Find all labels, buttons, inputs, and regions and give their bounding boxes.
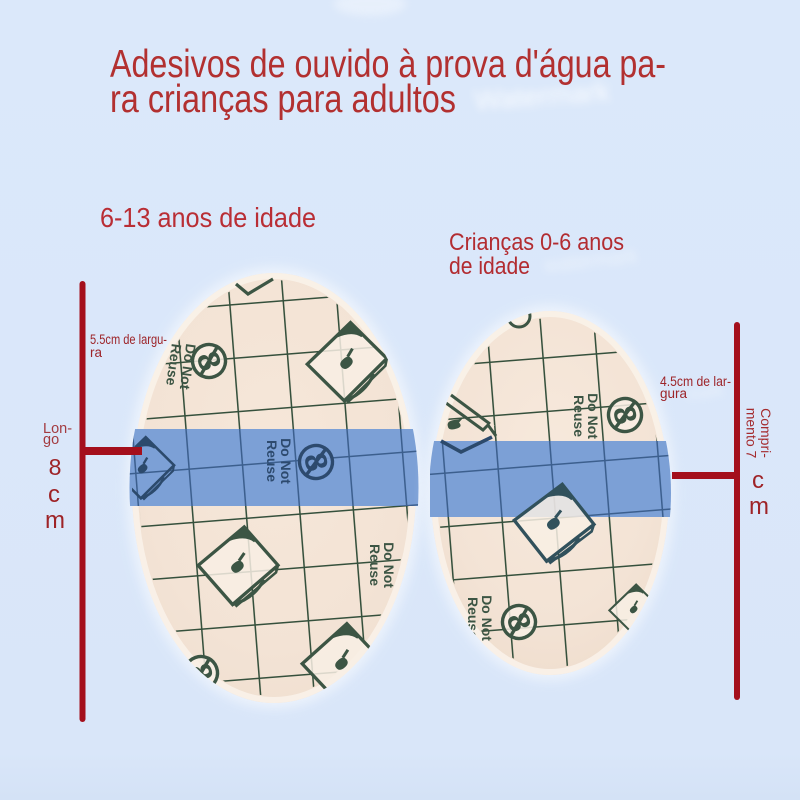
svg-text:8: 8 [49,454,62,480]
svg-text:ra: ra [90,345,102,360]
svg-text:gura: gura [660,386,688,401]
svg-text:m: m [45,507,65,534]
svg-text:de idade: de idade [449,253,530,280]
svg-text:mento 7: mento 7 [744,408,760,459]
svg-text:go: go [43,432,59,448]
svg-text:m: m [749,493,769,520]
svg-text:c: c [48,481,60,508]
svg-text:c: c [752,467,764,494]
svg-text:ra crianças para adultos: ra crianças para adultos [110,78,456,121]
svg-text:6-13 anos de idade: 6-13 anos de idade [100,202,316,233]
svg-text:Crianças 0-6 anos: Crianças 0-6 anos [449,229,624,256]
